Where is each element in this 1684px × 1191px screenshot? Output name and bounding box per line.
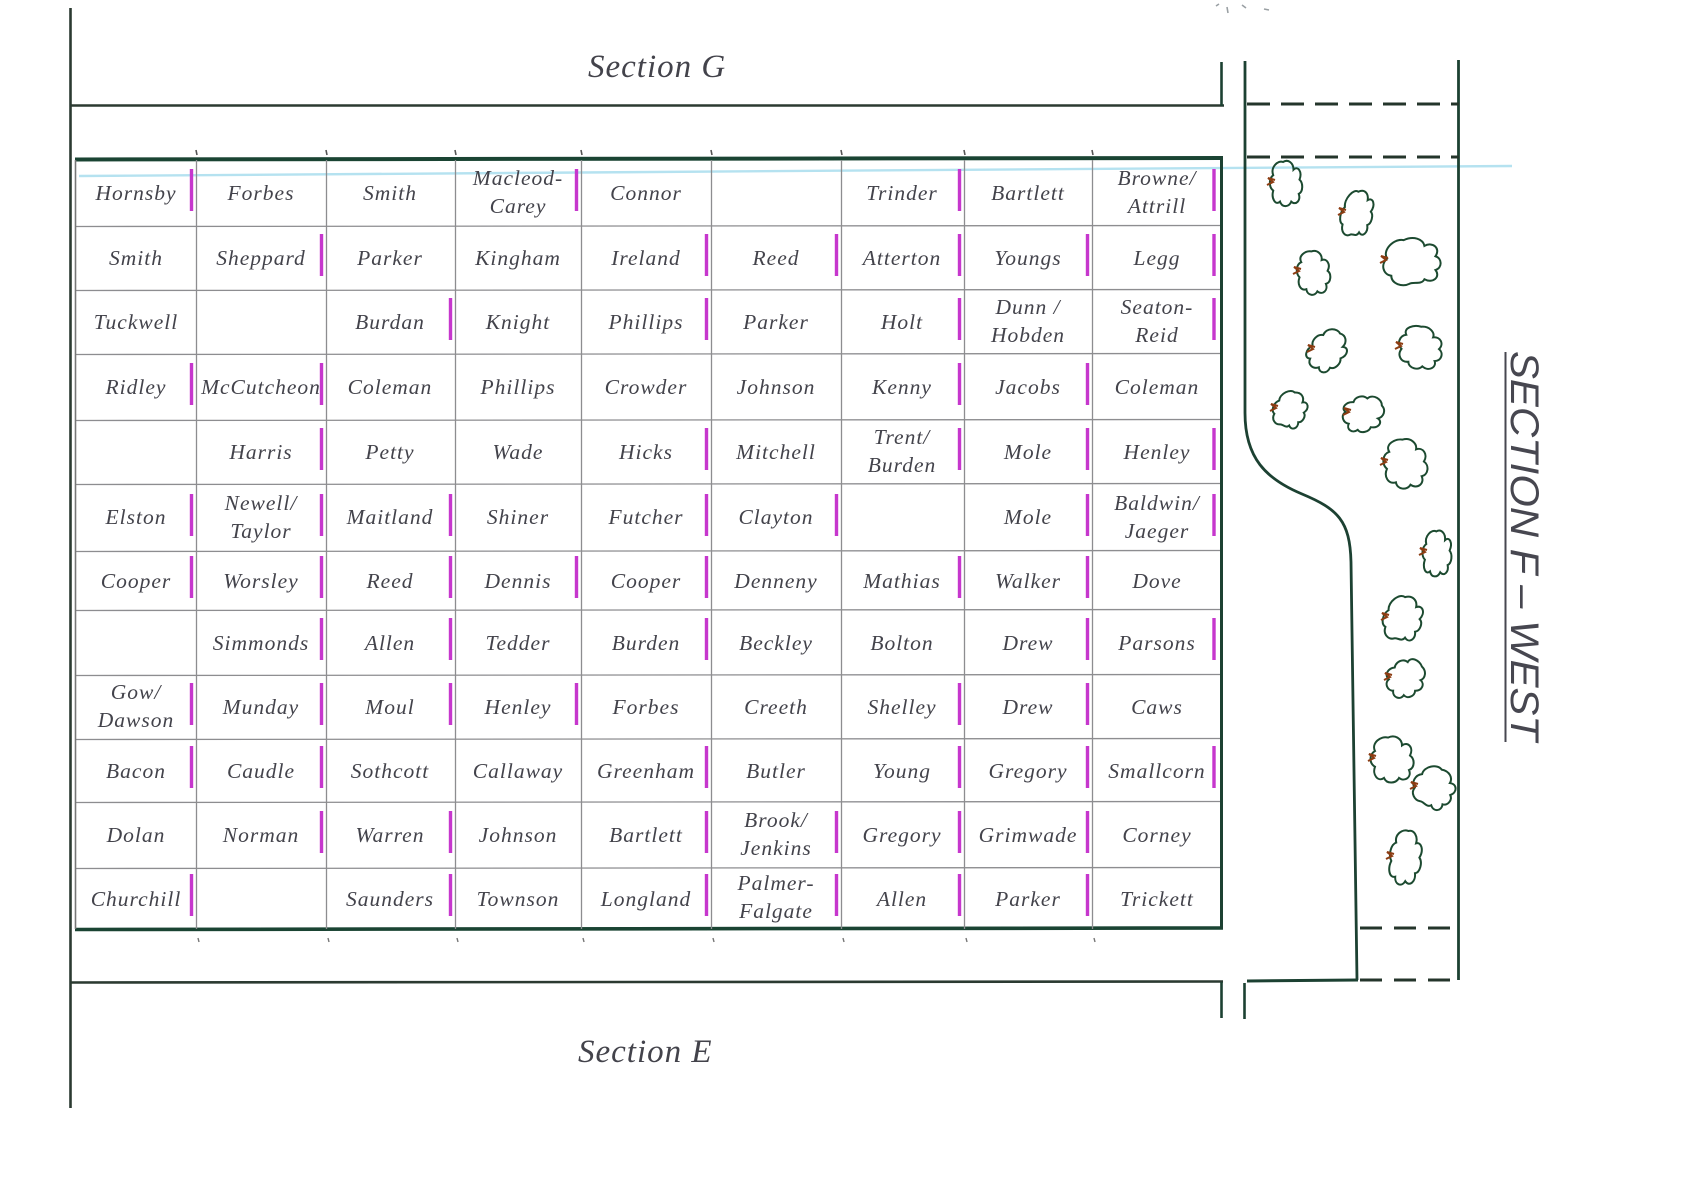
svg-text:Worsley: Worsley (223, 569, 298, 593)
svg-text:Connor: Connor (610, 181, 682, 205)
svg-text:Shelley: Shelley (867, 695, 936, 719)
svg-text:Burdan: Burdan (355, 310, 425, 334)
svg-text:Reed: Reed (752, 246, 800, 270)
svg-text:Hobden: Hobden (990, 323, 1065, 347)
svg-text:Caws: Caws (1131, 695, 1183, 719)
svg-text:Trent/: Trent/ (874, 425, 932, 449)
svg-text:Henley: Henley (1123, 440, 1191, 464)
svg-text:Drew: Drew (1002, 695, 1054, 719)
svg-text:Phillips: Phillips (480, 375, 556, 399)
svg-text:Gow/: Gow/ (111, 680, 163, 704)
svg-text:Forbes: Forbes (612, 695, 680, 719)
svg-text:Newell/: Newell/ (224, 491, 299, 515)
svg-text:Brook/: Brook/ (744, 808, 809, 832)
svg-text:Shiner: Shiner (487, 505, 549, 529)
svg-text:Henley: Henley (484, 695, 552, 719)
svg-text:Knight: Knight (485, 310, 551, 334)
svg-text:Parsons: Parsons (1117, 631, 1195, 655)
svg-text:Dawson: Dawson (97, 708, 174, 732)
svg-text:Mole: Mole (1003, 505, 1052, 529)
svg-text:Gregory: Gregory (862, 823, 941, 847)
svg-text:Dove: Dove (1131, 569, 1181, 593)
svg-text:Simmonds: Simmonds (213, 631, 309, 655)
svg-text:Falgate: Falgate (738, 899, 813, 923)
svg-text:Greenham: Greenham (597, 759, 695, 783)
svg-text:Bolton: Bolton (870, 631, 933, 655)
svg-text:Petty: Petty (364, 440, 414, 464)
svg-text:Norman: Norman (222, 823, 299, 847)
svg-text:Atterton: Atterton (861, 246, 941, 270)
svg-text:Reed: Reed (366, 569, 414, 593)
svg-text:Tuckwell: Tuckwell (94, 310, 178, 334)
svg-text:Harris: Harris (228, 440, 292, 464)
svg-text:Johnson: Johnson (479, 823, 558, 847)
svg-text:Parker: Parker (356, 246, 423, 270)
svg-text:Smith: Smith (363, 181, 417, 205)
svg-text:Caudle: Caudle (227, 759, 295, 783)
svg-text:Cooper: Cooper (611, 569, 682, 593)
svg-text:Gregory: Gregory (988, 759, 1067, 783)
svg-text:Mitchell: Mitchell (735, 440, 816, 464)
svg-text:Ridley: Ridley (105, 375, 167, 399)
svg-text:Parker: Parker (994, 887, 1061, 911)
svg-text:Moul: Moul (364, 695, 414, 719)
svg-text:Townson: Townson (477, 887, 560, 911)
svg-text:Jacobs: Jacobs (995, 375, 1061, 399)
svg-text:Parker: Parker (742, 310, 809, 334)
svg-text:Futcher: Futcher (607, 505, 683, 529)
svg-text:Longland: Longland (600, 887, 691, 911)
svg-text:Jaeger: Jaeger (1125, 519, 1190, 543)
svg-text:Holt: Holt (880, 310, 923, 334)
svg-text:Churchill: Churchill (91, 887, 182, 911)
svg-text:Maitland: Maitland (346, 505, 434, 529)
svg-text:Mathias: Mathias (862, 569, 940, 593)
svg-text:Saunders: Saunders (346, 887, 434, 911)
svg-text:Wade: Wade (493, 440, 544, 464)
svg-text:McCutcheon: McCutcheon (200, 375, 321, 399)
svg-text:Attrill: Attrill (1126, 194, 1186, 218)
svg-text:Smallcorn: Smallcorn (1108, 759, 1205, 783)
svg-text:Seaton-: Seaton- (1121, 295, 1194, 319)
svg-text:Grimwade: Grimwade (979, 823, 1078, 847)
svg-text:Ireland: Ireland (610, 246, 681, 270)
svg-text:Coleman: Coleman (348, 375, 433, 399)
svg-text:Burden: Burden (612, 631, 681, 655)
svg-text:Bartlett: Bartlett (991, 181, 1065, 205)
svg-text:Tedder: Tedder (486, 631, 551, 655)
svg-text:Section E: Section E (578, 1034, 713, 1070)
svg-text:Creeth: Creeth (744, 695, 808, 719)
svg-text:Palmer-: Palmer- (736, 871, 814, 895)
svg-text:Beckley: Beckley (739, 631, 813, 655)
svg-text:SECTION F – WEST: SECTION F – WEST (1502, 351, 1546, 744)
svg-text:Phillips: Phillips (608, 310, 684, 334)
svg-text:Allen: Allen (363, 631, 415, 655)
svg-text:Hornsby: Hornsby (94, 181, 176, 205)
svg-text:Baldwin/: Baldwin/ (1114, 491, 1201, 515)
svg-text:Trinder: Trinder (866, 181, 938, 205)
svg-text:Browne/: Browne/ (1117, 166, 1197, 190)
svg-text:Reid: Reid (1134, 323, 1178, 347)
svg-text:Corney: Corney (1122, 823, 1191, 847)
svg-text:Sothcott: Sothcott (351, 759, 429, 783)
svg-text:Kingham: Kingham (474, 246, 561, 270)
svg-text:Munday: Munday (222, 695, 299, 719)
svg-text:Bartlett: Bartlett (609, 823, 683, 847)
svg-text:Youngs: Youngs (994, 246, 1061, 270)
svg-text:Walker: Walker (995, 569, 1061, 593)
svg-text:Mole: Mole (1003, 440, 1052, 464)
svg-text:Johnson: Johnson (737, 375, 816, 399)
svg-text:Clayton: Clayton (738, 505, 813, 529)
svg-text:Taylor: Taylor (230, 519, 291, 543)
svg-text:Macleod-: Macleod- (472, 166, 563, 190)
svg-text:Young: Young (873, 759, 931, 783)
svg-text:Sheppard: Sheppard (216, 246, 306, 270)
svg-text:Drew: Drew (1002, 631, 1054, 655)
svg-text:Coleman: Coleman (1115, 375, 1200, 399)
svg-text:Trickett: Trickett (1120, 887, 1194, 911)
svg-text:Forbes: Forbes (227, 181, 295, 205)
svg-text:Jenkins: Jenkins (740, 836, 811, 860)
svg-text:Carey: Carey (490, 194, 547, 218)
svg-text:Burden: Burden (868, 453, 937, 477)
svg-text:Allen: Allen (875, 887, 927, 911)
svg-text:Kenny: Kenny (871, 375, 932, 399)
svg-text:Section G: Section G (588, 49, 726, 85)
svg-text:Butler: Butler (746, 759, 806, 783)
svg-text:Dennis: Dennis (484, 569, 552, 593)
svg-text:Elston: Elston (105, 505, 167, 529)
svg-text:Dunn /: Dunn / (994, 295, 1061, 319)
svg-text:Warren: Warren (356, 823, 425, 847)
svg-text:Bacon: Bacon (106, 759, 166, 783)
svg-text:Cooper: Cooper (101, 569, 172, 593)
svg-text:Legg: Legg (1133, 246, 1181, 270)
svg-text:Smith: Smith (109, 246, 163, 270)
svg-text:Denneny: Denneny (733, 569, 817, 593)
svg-text:Hicks: Hicks (618, 440, 673, 464)
svg-text:Crowder: Crowder (605, 375, 688, 399)
svg-text:Callaway: Callaway (473, 759, 563, 783)
svg-text:Dolan: Dolan (106, 823, 166, 847)
